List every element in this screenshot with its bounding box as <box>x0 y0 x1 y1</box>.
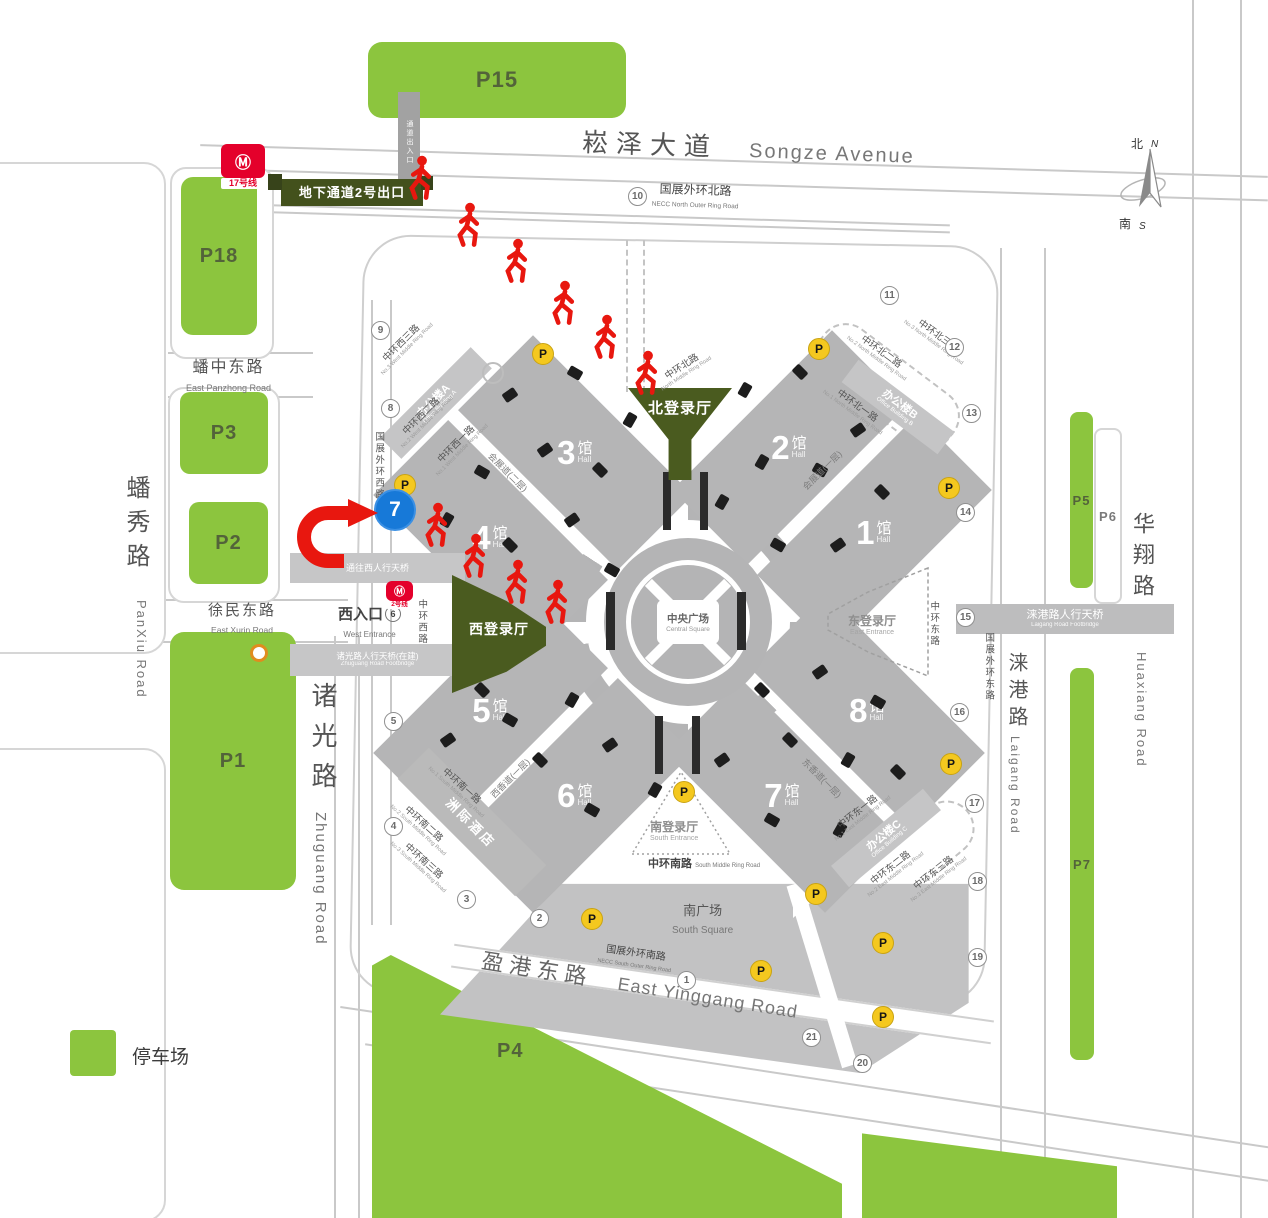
gate-6-marker: 6 <box>385 606 401 622</box>
south-entrance-label-en: South Entrance <box>650 835 698 842</box>
road-marker-20: 20 <box>853 1054 872 1073</box>
road-line <box>1044 248 1046 1218</box>
songze-zh: 崧泽大道 <box>582 127 719 162</box>
legend-parking-label: 停车场 <box>132 1042 189 1069</box>
ring-road-label: 中环东路 <box>928 601 938 647</box>
necc-north-en: NECC North Outer Ring Road <box>652 201 739 211</box>
road-label-songze: 崧泽大道 Songze Avenue <box>581 122 915 171</box>
east-entrance-hall: 东登录厅East Entrance <box>826 566 930 678</box>
walkway-strip <box>663 472 671 530</box>
road-label-panxiu: 蟠秀路 <box>118 475 153 577</box>
panzhong-zh: 蟠中东路 <box>193 359 265 376</box>
walking-person-icon <box>628 350 664 396</box>
road-marker-11: 11 <box>880 286 899 305</box>
parking-label-p15: P15 <box>476 67 518 93</box>
parking-lot-p7: P7 <box>1070 668 1094 1060</box>
compass-south-en: S <box>1139 221 1146 232</box>
west-gate-en: West Entrance <box>343 630 395 639</box>
ring-south-zh: 中环南路 <box>648 858 692 870</box>
road-line <box>1000 248 1002 1218</box>
parking-lot-p18: P18 <box>181 177 257 335</box>
logo-circle-icon <box>482 362 504 384</box>
metro-logo: Ⓜ <box>386 581 413 601</box>
road-line <box>1192 0 1194 1218</box>
metro-line17-label: 17号线 <box>221 178 265 189</box>
parking-label-p3: P3 <box>211 422 237 445</box>
hall-7-label: 7馆Hall <box>765 779 800 812</box>
east-entrance-label-en: East Entrance <box>848 629 896 636</box>
parking-lot-p1: P1 <box>170 632 296 890</box>
central-plaza-name-en: Central Square <box>666 626 710 633</box>
west-gate-zh: 西入口 <box>338 606 383 623</box>
compass-north-en: N <box>1151 139 1158 150</box>
parking-label-p2: P2 <box>215 532 241 555</box>
zhuguang-footbridge-band: 诸光路人行天桥(在建)Zhuguang Road Footbridge <box>290 644 465 676</box>
parking-icon: P <box>805 883 827 905</box>
ring-south-en: South Middle Ring Road <box>695 863 760 869</box>
road-label-ring-south: 中环南路 South Middle Ring Road <box>648 855 760 871</box>
parking-label-p1: P1 <box>220 750 246 773</box>
road-label-laigang-en: Laigang Road <box>1008 736 1022 835</box>
south-square-zh: 南广场 <box>683 903 722 918</box>
road-marker-1: 1 <box>677 971 696 990</box>
parking-lot-p6: P6 <box>1094 428 1122 604</box>
road-label-panxiu-en: PanXiu Road <box>134 600 149 699</box>
road-label-zhuguang: 诸光路 <box>305 682 342 802</box>
block-outline <box>0 748 166 1218</box>
road-label-laigang: 涞港路 <box>1002 652 1031 733</box>
road-label-zhuguang-en: Zhuguang Road <box>312 812 329 946</box>
south-entrance-hall: 南登录厅South Entrance <box>622 760 740 864</box>
central-plaza-label: 中央广场 Central Square <box>657 600 719 644</box>
parking-lot-p3: P3 <box>180 392 268 474</box>
parking-icon: P <box>940 753 962 775</box>
road-marker-19: 19 <box>968 948 987 967</box>
road-marker-17: 17 <box>965 794 984 813</box>
road-marker-3: 3 <box>457 890 476 909</box>
road-marker-13: 13 <box>962 404 981 423</box>
parking-icon: P <box>872 932 894 954</box>
walkway-strip <box>700 472 708 530</box>
metro-line17-icon: Ⓜ 17号线 <box>221 144 265 189</box>
gate-7-marker: 7 <box>374 489 416 531</box>
east-entrance-label: 东登录厅 <box>848 614 896 628</box>
road-label-huaxiang: 华翔路 <box>1126 512 1158 605</box>
road-label-xumin: 徐民东路 East Xurin Road <box>208 602 276 638</box>
xumin-en: East Xurin Road <box>211 625 273 635</box>
songze-en: Songze Avenue <box>749 140 915 168</box>
road-label-necc-north: 国展外环北路 NECC North Outer Ring Road <box>652 183 739 212</box>
walking-person-icon <box>498 559 534 605</box>
compass: 北 N 南 S <box>1103 133 1183 238</box>
parking-label-p5: P5 <box>1073 493 1091 508</box>
road-marker-16: 16 <box>950 703 969 722</box>
walking-person-icon <box>402 155 438 201</box>
hall-3-label: 3馆Hall <box>558 436 593 469</box>
road-marker-15: 15 <box>956 608 975 627</box>
necc-venue-map: P15 P18 P3 P2 P1 P4 P5 P6 P7 3馆Hall 4馆Ha… <box>0 0 1268 1218</box>
parking-lot-p5: P5 <box>1070 412 1093 588</box>
road-marker-12: 12 <box>945 338 964 357</box>
laigang-footbridge-band: 涞港路人行天桥Laigang Road Footbridge <box>956 604 1174 634</box>
south-square-label: 南广场 South Square <box>672 902 733 938</box>
laigang-footbridge-label: 涞港路人行天桥 <box>1027 609 1104 622</box>
necc-north-zh: 国展外环北路 <box>659 182 731 198</box>
zhuguang-footbridge-label-en: Zhuguang Road Footbridge <box>341 661 414 668</box>
panzhong-en: East Panzhong Road <box>186 383 271 393</box>
road-marker-4: 4 <box>384 817 403 836</box>
road-marker-14: 14 <box>956 503 975 522</box>
metro-line2-icon: Ⓜ 2号线 <box>386 581 413 609</box>
road-marker-21: 21 <box>802 1028 821 1047</box>
parking-label-p6: P6 <box>1099 509 1117 524</box>
parking-label-p18: P18 <box>200 245 239 268</box>
parking-icon: P <box>673 781 695 803</box>
parking-icon: P <box>808 338 830 360</box>
walking-person-icon <box>587 314 623 360</box>
ring-road-label: 国展外环西路 <box>373 432 383 501</box>
legend-parking-swatch <box>70 1030 116 1076</box>
west-entrance-label: 西登录厅 <box>452 619 546 639</box>
south-entrance-label: 南登录厅 <box>650 820 698 834</box>
road-label-huaxiang-en: Huaxiang Road <box>1134 652 1149 768</box>
road-line <box>1240 0 1242 1218</box>
parking-icon: P <box>532 343 554 365</box>
laigang-footbridge-label-en: Laigang Road Footbridge <box>1031 622 1099 629</box>
parking-icon: P <box>938 477 960 499</box>
metro-logo: Ⓜ <box>221 144 265 178</box>
south-entrance-outline <box>622 760 740 864</box>
block-outline <box>0 162 166 654</box>
road-marker-10: 10 <box>628 187 647 206</box>
compass-south-zh: 南 <box>1119 215 1131 232</box>
u-turn-arrow <box>294 499 378 579</box>
road-marker-8: 8 <box>381 399 400 418</box>
road-marker-5: 5 <box>384 712 403 731</box>
parking-label-p4: P4 <box>497 1040 523 1063</box>
walking-person-icon <box>418 502 454 548</box>
hall-2-label: 2馆Hall <box>772 431 807 464</box>
ring-road-label: 中环西路 <box>416 599 426 645</box>
xumin-zh: 徐民东路 <box>208 602 276 619</box>
parking-label-p7: P7 <box>1073 857 1091 872</box>
zhuguang-footbridge-label: 诸光路人行天桥(在建) <box>336 652 418 662</box>
metro-line2-label: 2号线 <box>386 601 413 609</box>
walking-person-icon <box>450 202 486 248</box>
south-square-en: South Square <box>672 925 733 936</box>
parking-icon: P <box>872 1006 894 1028</box>
road-marker-9: 9 <box>371 321 390 340</box>
ring-road-label: 国展外环东路 <box>983 633 993 702</box>
walking-person-icon <box>538 579 574 625</box>
hall-1-label: 1馆Hall <box>857 516 892 549</box>
compass-north-zh: 北 <box>1131 135 1143 152</box>
west-gate-label: 西入口6 West Entrance <box>338 606 401 642</box>
walking-person-icon <box>498 238 534 284</box>
parking-lot-p2: P2 <box>189 502 268 584</box>
road-marker-18: 18 <box>968 872 987 891</box>
parking-icon: P <box>750 960 772 982</box>
bus-stop-icon <box>250 644 268 662</box>
exit-label-end <box>268 174 282 190</box>
parking-icon: P <box>581 908 603 930</box>
road-marker-2: 2 <box>530 909 549 928</box>
road-label-panzhong: 蟠中东路 East Panzhong Road <box>186 358 271 396</box>
walkway-strip <box>606 592 615 650</box>
walking-person-icon <box>545 280 581 326</box>
central-plaza-name: 中央广场 <box>667 611 709 626</box>
walking-person-icon <box>456 533 492 579</box>
walkway-strip <box>737 592 746 650</box>
